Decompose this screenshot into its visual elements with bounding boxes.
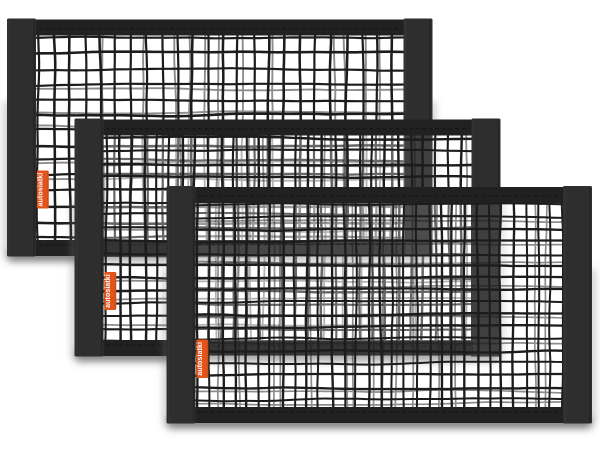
svg-text:autosiatki: autosiatki [37,173,44,207]
svg-text:autosiatki: autosiatki [197,342,204,376]
svg-text:autosiatki: autosiatki [105,274,112,308]
